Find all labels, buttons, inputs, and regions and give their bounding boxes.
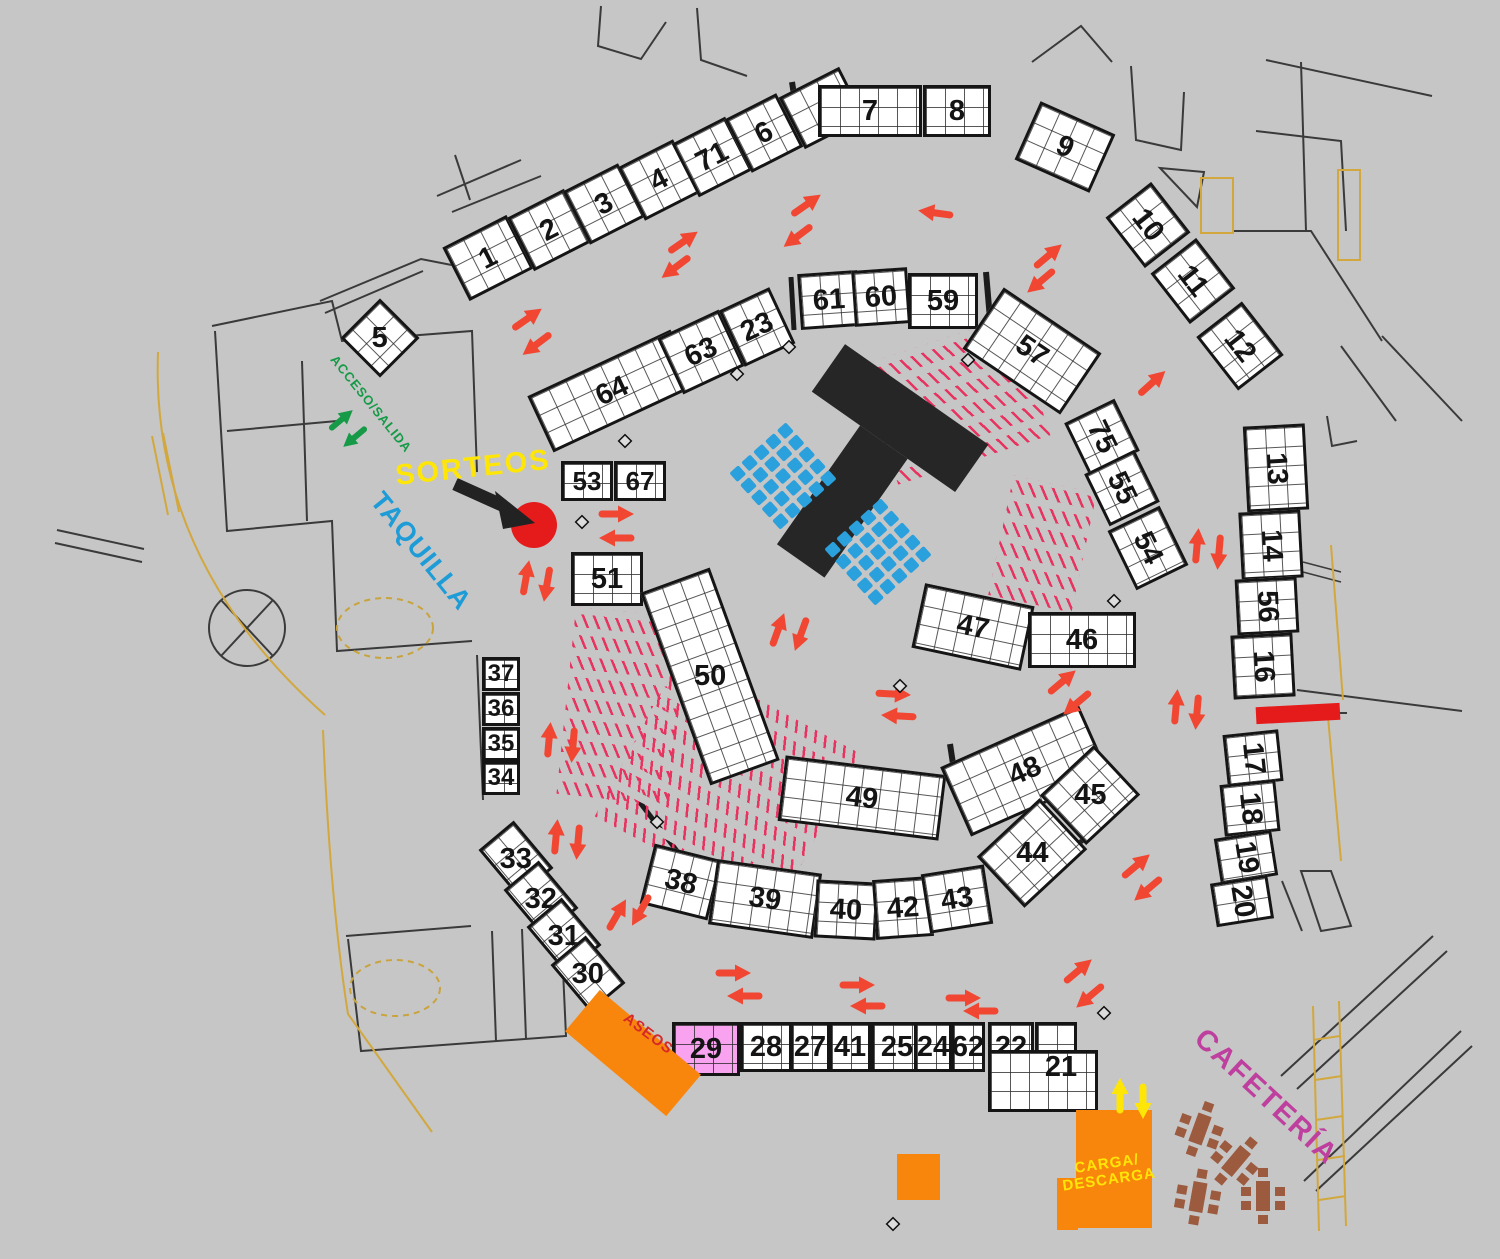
- taquilla-label: TAQUILLA: [365, 487, 477, 616]
- labels-layer: SORTEOSTAQUILLAACCESO/SALIDACAFETERÍAASE…: [0, 0, 1500, 1259]
- carga-descarga-label: CARGA/ DESCARGA: [1059, 1150, 1156, 1194]
- cafeteria-label: CAFETERÍA: [1188, 1023, 1343, 1171]
- aseos-label: ASEOS: [620, 1010, 675, 1057]
- acceso-salida-label: ACCESO/SALIDA: [328, 353, 415, 455]
- floor-plan: 1234716789101112131456161718192064632361…: [0, 0, 1500, 1259]
- sorteos-label: SORTEOS: [394, 445, 552, 492]
